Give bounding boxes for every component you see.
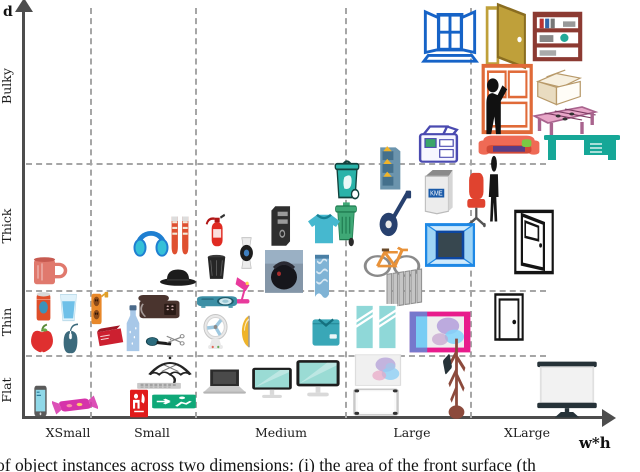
window-dark-icon: [424, 221, 476, 269]
y-tick-label-thin: Thin: [0, 282, 15, 362]
telephone-icon: [136, 291, 183, 323]
projection-screen-icon: [532, 357, 602, 419]
backpack-photo-icon: [264, 249, 304, 294]
desk-lamp-icon: [234, 272, 265, 307]
mug-icon: [29, 252, 69, 290]
monitor-icon: [250, 366, 294, 401]
sneakers-icon: [166, 213, 194, 259]
svg-text:KME: KME: [430, 190, 442, 198]
cabinet-person-icon: [472, 60, 536, 138]
guitar-icon: [376, 188, 412, 240]
fire-extinguisher-icon: [203, 212, 232, 250]
person-icon: [481, 155, 507, 225]
x-axis: [22, 416, 606, 419]
door-open-outline-icon: [512, 208, 556, 276]
photocopier-icon: [414, 121, 463, 165]
x-tick-label-xsmall: XSmall: [23, 425, 113, 440]
headphones-icon: [131, 222, 171, 260]
door-closed-icon: [488, 292, 530, 342]
y-axis-label: d: [3, 4, 13, 20]
smartphone-icon: [31, 385, 50, 417]
file-cabinet-icon: [374, 141, 405, 192]
y-axis: [22, 6, 25, 418]
x-tick-label-small: Small: [107, 425, 197, 440]
watch-icon: [233, 236, 260, 270]
fire-sign-icon: [127, 389, 151, 418]
table-fan-icon: [197, 312, 234, 352]
water-glass-icon: [57, 292, 80, 323]
monitor-icon: [294, 358, 342, 400]
bookshelf-icon: [530, 9, 585, 64]
towel-icon: [308, 251, 336, 302]
y-axis-arrow-icon: [15, 0, 33, 12]
apple-icon: [28, 323, 56, 354]
candy-bar-icon: [52, 392, 98, 418]
scissors-icon: [164, 331, 186, 350]
x-tick-label-xlarge: XLarge: [482, 425, 572, 440]
laptop-icon: [201, 366, 247, 401]
vending-machine-icon: KME: [418, 165, 460, 215]
folded-shirt-icon: [308, 315, 344, 350]
whiteboard-icon: [352, 387, 400, 418]
hat-icon: [158, 263, 198, 289]
caption: of object instances across two dimension…: [0, 455, 640, 472]
eco-bin-icon: [329, 157, 365, 202]
desk-icon: [542, 126, 622, 166]
projector-icon: [196, 291, 238, 312]
x-tick-label-large: Large: [367, 425, 457, 440]
exit-sign-icon: [151, 391, 197, 412]
x-tick-label-medium: Medium: [236, 425, 326, 440]
figure-canvas: d w*h of object instances across two dim…: [0, 0, 640, 472]
window-open-icon: [421, 9, 479, 67]
sweater-icon: [304, 209, 344, 247]
y-tick-label-flat: Flat: [0, 350, 15, 430]
tower-pc-icon: [266, 204, 297, 248]
painting-abstract-icon: [353, 353, 403, 389]
window-panes-icon: [352, 301, 400, 353]
wall-light-icon: [236, 314, 256, 349]
y-tick-label-thick: Thick: [0, 186, 15, 266]
x-axis-arrow-icon: [602, 409, 616, 427]
grid-hline: [26, 163, 546, 165]
x-axis-label: w*h: [579, 434, 611, 452]
computer-mouse-icon: [58, 321, 83, 354]
trashcan-icon: [202, 251, 231, 282]
y-tick-label-bulky: Bulky: [0, 46, 15, 126]
soda-can-icon: [31, 289, 56, 324]
coat-rack-icon: [438, 332, 475, 421]
